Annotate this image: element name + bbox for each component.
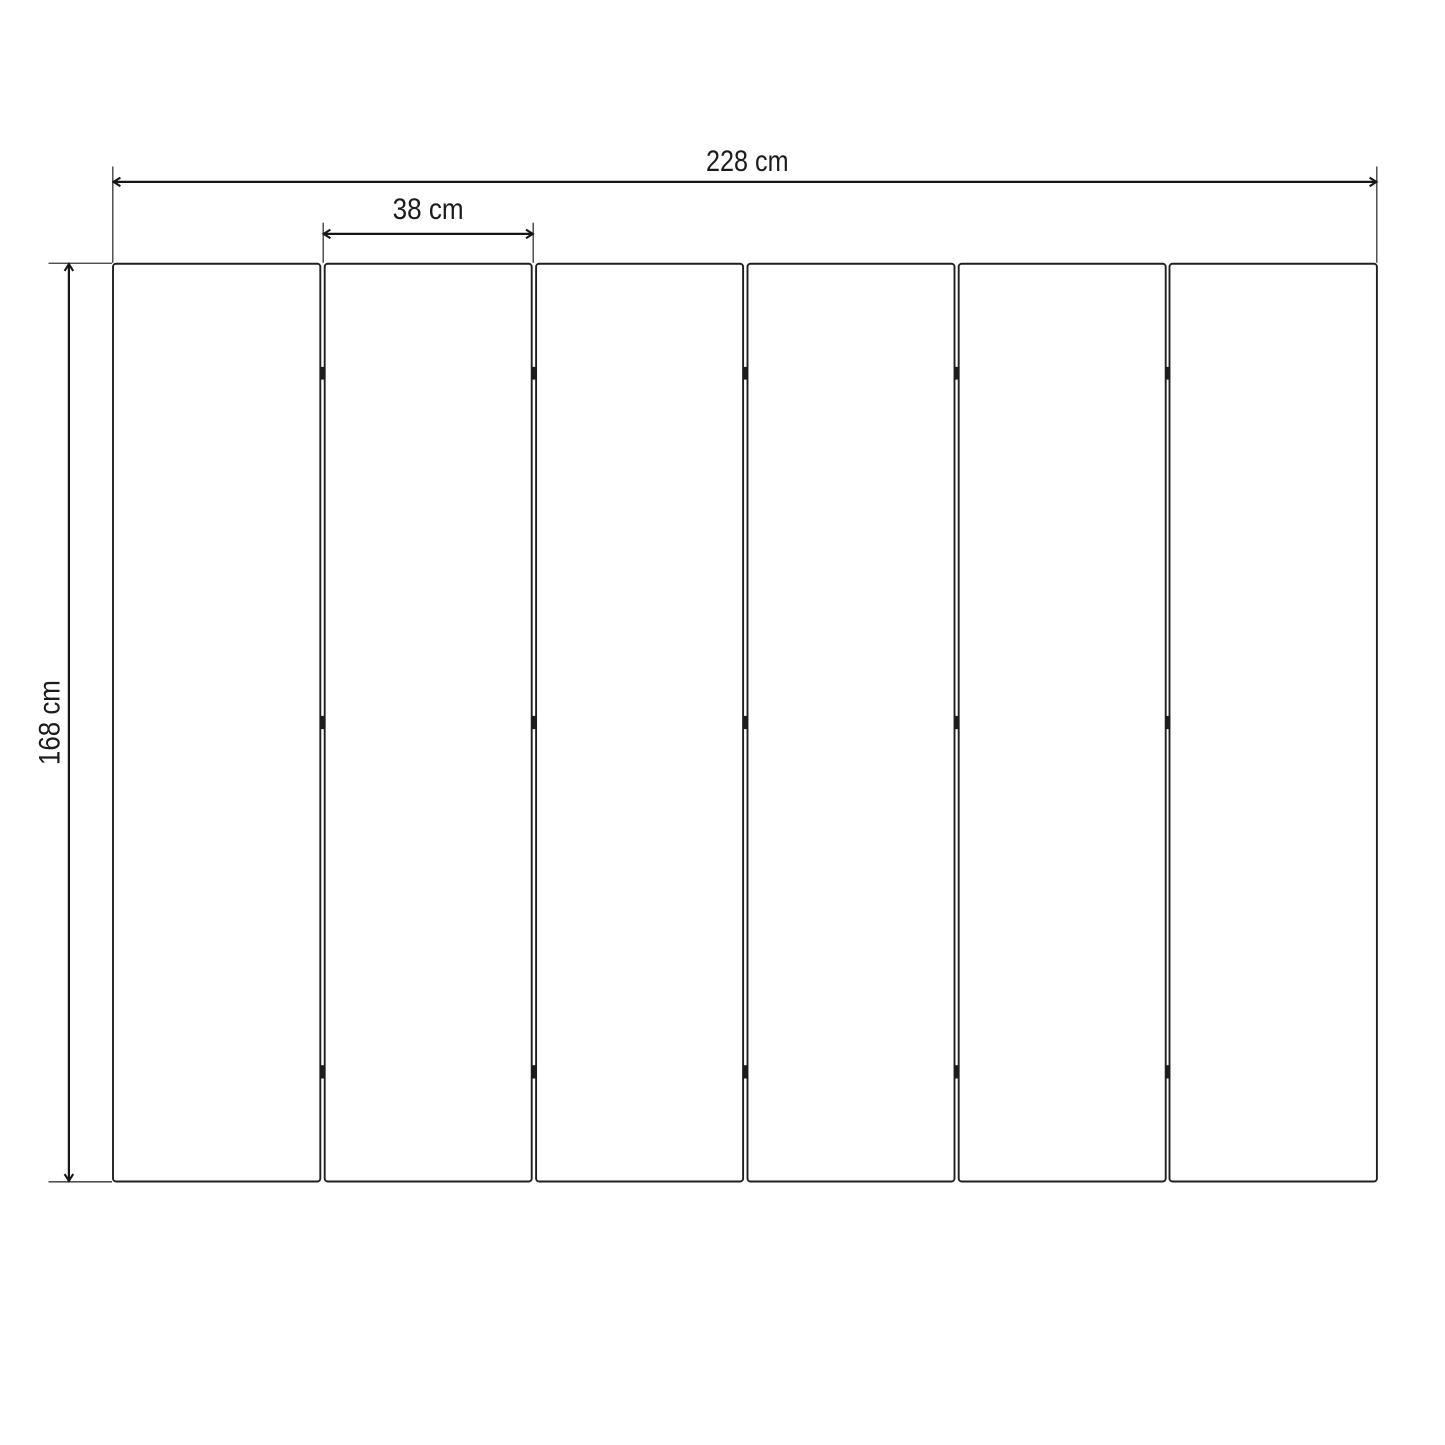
svg-text:228 cm: 228 cm <box>706 145 789 178</box>
svg-text:168 cm: 168 cm <box>34 680 67 765</box>
svg-text:38 cm: 38 cm <box>393 193 464 226</box>
